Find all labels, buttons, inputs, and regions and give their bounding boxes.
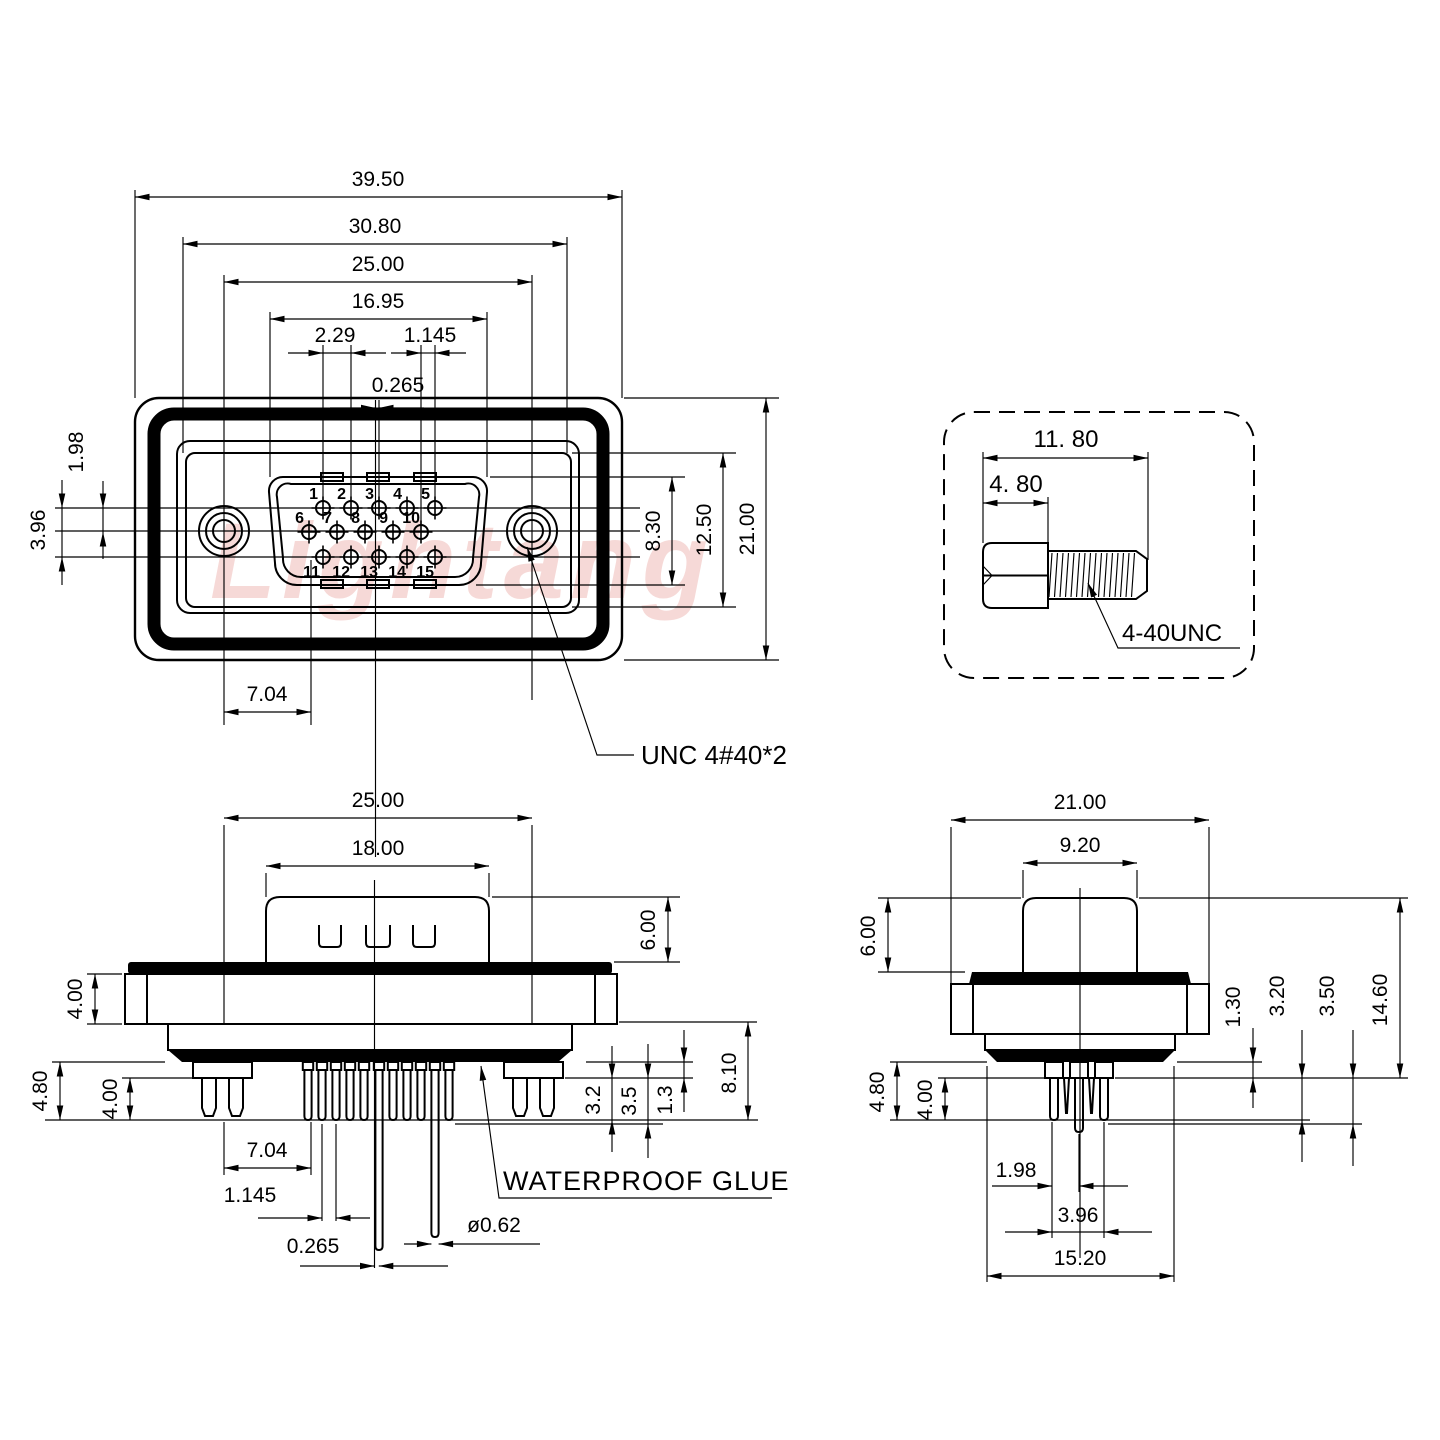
dim-text: 25.00: [352, 789, 405, 812]
side-section-view: 21.00 9.20 6.00 4.80 4.00 1.30 3.20 3.50…: [857, 791, 1408, 1282]
pin-number: 5: [421, 486, 430, 503]
dim-text: 21.00: [736, 503, 759, 556]
dim-text: 4.80: [866, 1072, 889, 1113]
dim-text: 3.2: [582, 1085, 605, 1114]
dim-text: 11. 80: [1034, 426, 1099, 453]
dim-text: 8.10: [718, 1053, 741, 1094]
pin-number: 12: [332, 564, 350, 581]
pin-number: 4: [393, 486, 402, 503]
front-section-extension-lines: [45, 825, 758, 1268]
shell-section: [266, 897, 489, 962]
front-section-body: [125, 897, 617, 1250]
waterproof-glue-strip: [985, 1050, 1175, 1062]
pin-number: 10: [402, 510, 420, 527]
flange-section: [125, 974, 617, 1024]
pin-number: 1: [309, 486, 318, 503]
screw-body: [983, 543, 1147, 608]
dim-text: 1.98: [996, 1159, 1037, 1182]
dim-text: 1.98: [65, 432, 88, 473]
dim-text: 12.50: [693, 504, 716, 557]
dim-text: 0.265: [372, 374, 425, 397]
screw-thread-label: UNC 4#40*2: [641, 740, 787, 770]
pin-number: 8: [351, 510, 360, 527]
drawing-sheet: Lightang: [0, 0, 1440, 1440]
dim-text: 18.00: [352, 837, 405, 860]
dim-text: 15.20: [1054, 1247, 1107, 1270]
dim-text: 1.30: [1222, 987, 1245, 1028]
dim-text: 1.145: [224, 1184, 277, 1207]
dim-text: 3.5: [618, 1086, 641, 1115]
dim-text: 4.00: [914, 1080, 937, 1121]
dim-text: 39.50: [352, 168, 405, 191]
gasket-bar: [128, 962, 612, 974]
watermark-text: Lightang: [210, 500, 714, 621]
dim-text: 8.30: [642, 511, 665, 552]
dim-text: 7.04: [247, 1139, 288, 1162]
gasket-bar: [969, 972, 1191, 984]
dim-text: 30.80: [349, 215, 402, 238]
pin-number: 14: [388, 564, 406, 581]
waterproof-glue-strip: [168, 1050, 572, 1062]
pin-number: 11: [303, 564, 320, 581]
dim-text: 16.95: [352, 290, 405, 313]
dim-text: 3.50: [1316, 976, 1339, 1017]
dim-text: 4.00: [64, 979, 87, 1020]
pin-number: 9: [379, 510, 388, 527]
pin-number: 15: [416, 564, 434, 581]
dim-text: 6.00: [637, 910, 660, 951]
dim-text: 0.265: [287, 1235, 340, 1258]
dim-text: 14.60: [1369, 974, 1392, 1027]
dim-text: 3.96: [27, 510, 50, 551]
dim-text: 9.20: [1060, 834, 1101, 857]
dim-text: 21.00: [1054, 791, 1107, 814]
glue-label: WATERPROOF GLUE: [503, 1166, 790, 1196]
dim-text: 3.20: [1266, 976, 1289, 1017]
thread-callout: 4-40UNC: [1088, 583, 1240, 648]
thread-label: 4-40UNC: [1122, 620, 1222, 647]
dim-text: 2.29: [315, 324, 356, 347]
dim-text: 7.04: [247, 683, 288, 706]
dim-text: 1.145: [404, 324, 457, 347]
dim-text: 25.00: [352, 253, 405, 276]
dim-text: 1.3: [654, 1085, 677, 1114]
dim-text: 4. 80: [989, 471, 1042, 498]
dim-text: 4.80: [29, 1071, 52, 1112]
dim-text: ø0.62: [467, 1214, 521, 1237]
engineering-drawing: Lightang: [0, 0, 1440, 1440]
screw-detail-view: 11. 80 4. 80 4-40UNC: [944, 412, 1254, 678]
dim-text: 6.00: [857, 916, 880, 957]
dim-text: 3.96: [1058, 1204, 1099, 1227]
dim-text: 4.00: [99, 1079, 122, 1120]
pin-number: 3: [365, 486, 374, 503]
pin-number: 6: [295, 510, 304, 527]
pin-number: 13: [360, 564, 378, 581]
insulator-body: [168, 1024, 572, 1050]
front-section-view: 25.00 18.00 6.00 4.00 4.80 4.00 7.04 1.1…: [29, 789, 790, 1268]
pin-number: 2: [337, 486, 346, 503]
solder-pins: [303, 1062, 454, 1250]
pin-number: 7: [323, 510, 332, 527]
